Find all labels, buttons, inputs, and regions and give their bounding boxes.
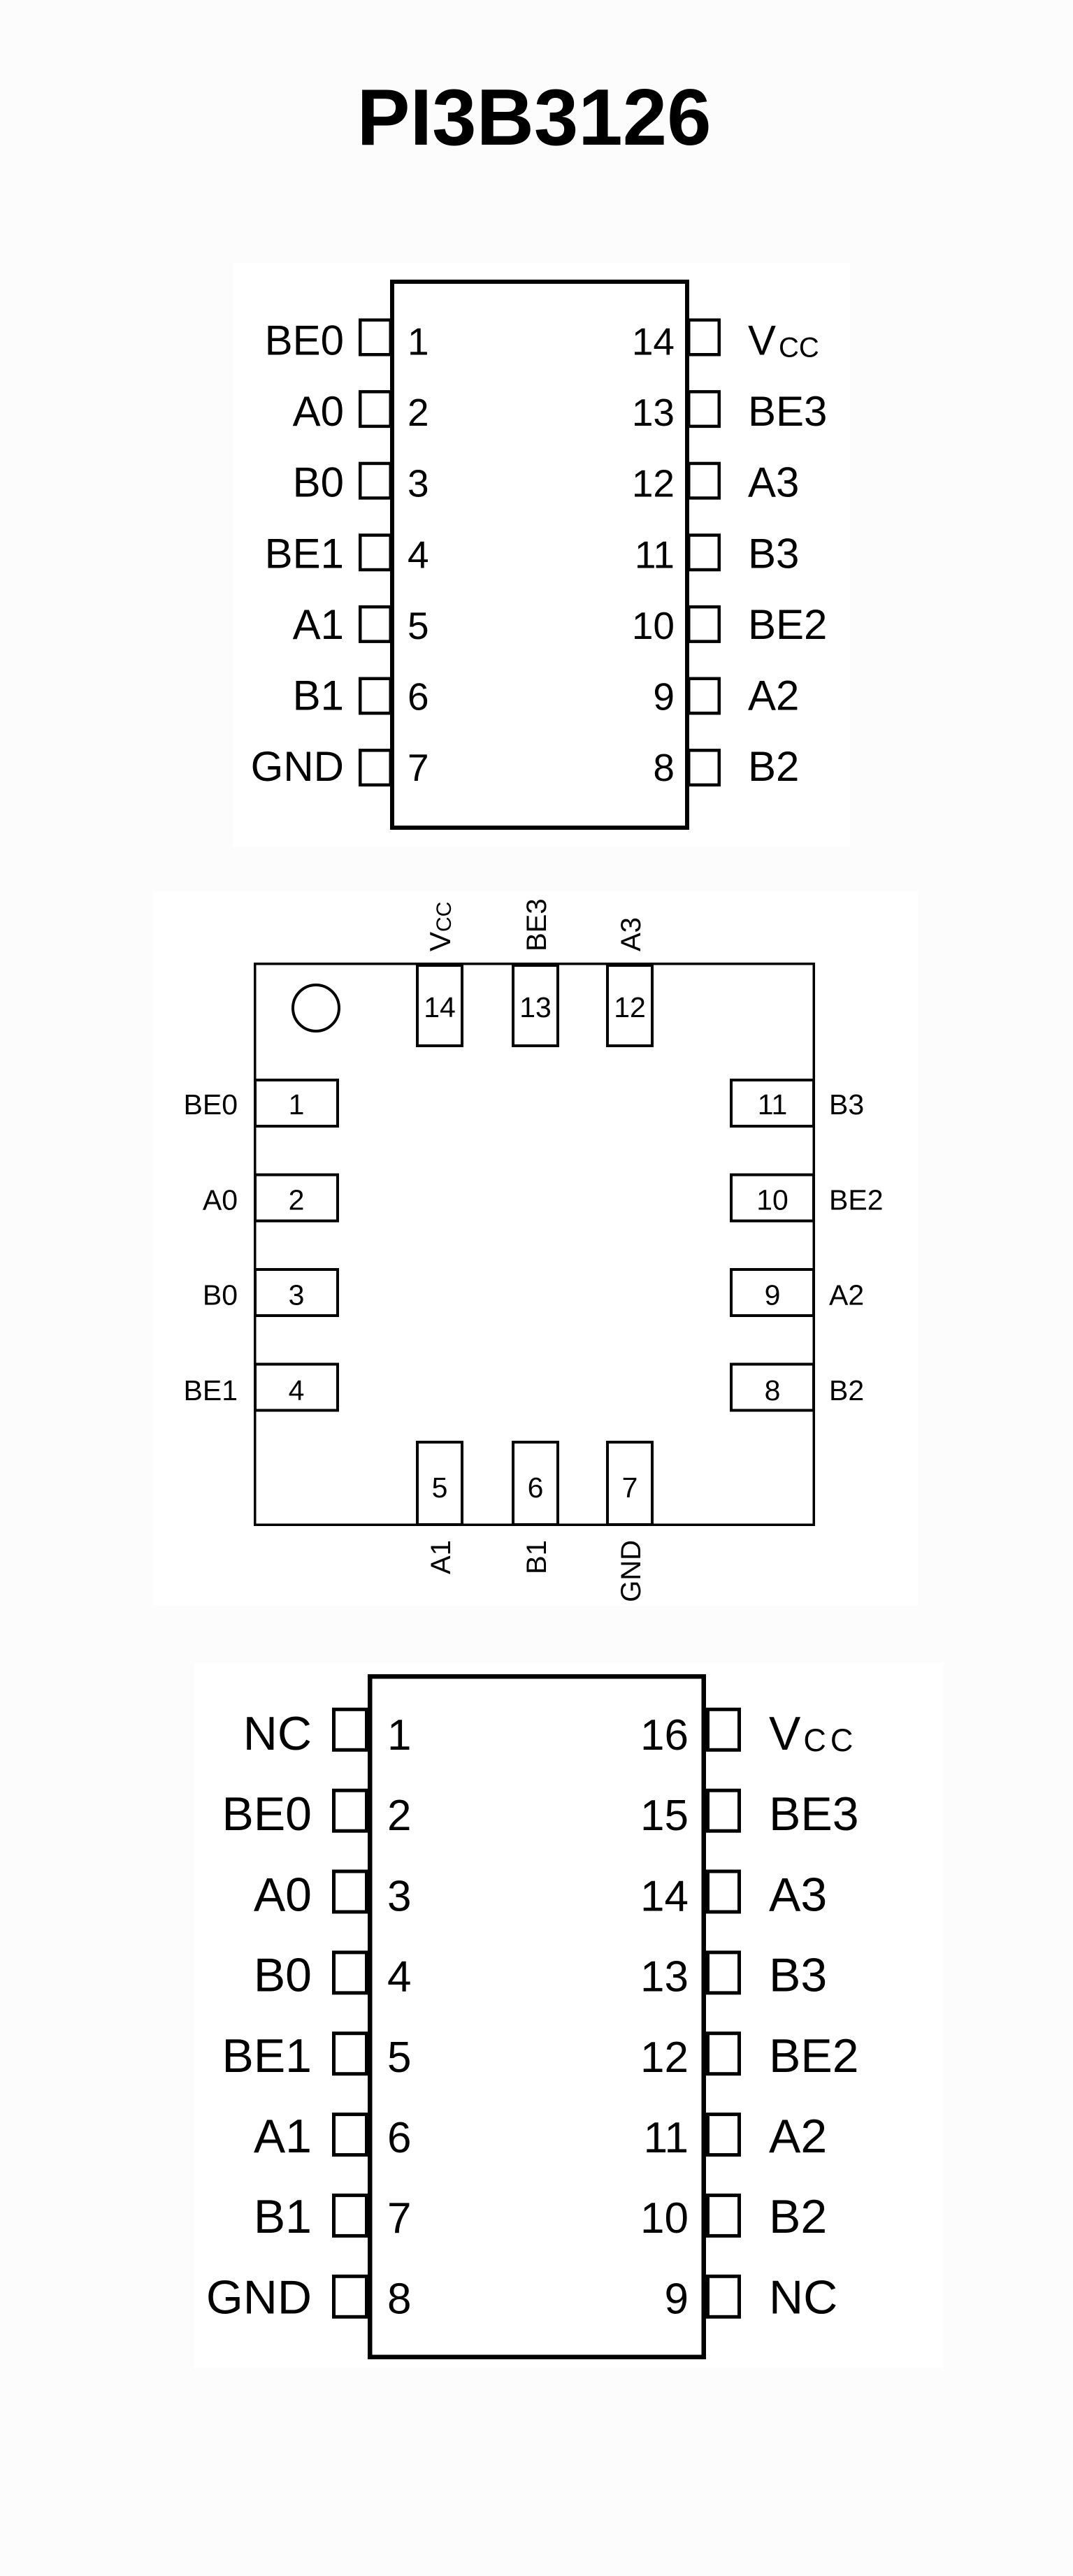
- svg-text:B0: B0: [203, 1279, 238, 1311]
- svg-text:12: 12: [640, 2034, 689, 2082]
- svg-text:13: 13: [632, 391, 675, 434]
- svg-text:2: 2: [387, 1792, 411, 1840]
- svg-text:A0: A0: [293, 388, 344, 435]
- svg-text:BE3: BE3: [521, 898, 552, 951]
- svg-text:15: 15: [640, 1792, 689, 1840]
- svg-text:A2: A2: [748, 672, 799, 719]
- svg-text:12: 12: [632, 462, 675, 505]
- svg-text:B1: B1: [293, 672, 344, 719]
- svg-text:11: 11: [644, 2114, 689, 2162]
- svg-text:B2: B2: [829, 1374, 864, 1406]
- svg-text:B3: B3: [769, 1949, 827, 2002]
- svg-text:B3: B3: [829, 1088, 864, 1121]
- svg-text:13: 13: [640, 1953, 689, 2001]
- svg-text:A2: A2: [829, 1279, 864, 1311]
- svg-text:9: 9: [653, 675, 675, 719]
- svg-text:B0: B0: [293, 459, 344, 506]
- svg-text:4: 4: [387, 1953, 411, 2001]
- svg-text:5: 5: [432, 1472, 448, 1504]
- svg-text:6: 6: [387, 2114, 411, 2162]
- svg-text:5: 5: [387, 2034, 411, 2082]
- svg-text:14: 14: [632, 320, 675, 364]
- svg-text:NC: NC: [243, 1707, 312, 1760]
- svg-text:7: 7: [387, 2194, 411, 2243]
- svg-text:B3: B3: [748, 530, 799, 577]
- svg-text:BE2: BE2: [769, 2029, 859, 2082]
- svg-text:1: 1: [408, 320, 429, 364]
- svg-text:B1: B1: [521, 1540, 552, 1574]
- svg-text:BE1: BE1: [184, 1374, 238, 1406]
- svg-text:9: 9: [665, 2275, 689, 2323]
- svg-text:6: 6: [528, 1472, 544, 1504]
- svg-text:7: 7: [622, 1472, 638, 1504]
- svg-text:16: 16: [640, 1711, 689, 1760]
- svg-text:4: 4: [408, 533, 429, 576]
- svg-text:BE2: BE2: [748, 601, 827, 648]
- svg-text:11: 11: [758, 1088, 788, 1121]
- svg-text:1: 1: [289, 1088, 305, 1121]
- svg-text:BE3: BE3: [748, 388, 827, 435]
- svg-text:A0: A0: [203, 1183, 238, 1216]
- svg-text:BE2: BE2: [829, 1183, 884, 1216]
- svg-text:6: 6: [408, 675, 429, 719]
- svg-text:NC: NC: [769, 2271, 837, 2324]
- svg-text:8: 8: [765, 1374, 781, 1406]
- svg-text:3: 3: [289, 1279, 305, 1311]
- svg-text:B0: B0: [254, 1949, 312, 2002]
- svg-text:A3: A3: [748, 459, 799, 506]
- svg-text:8: 8: [387, 2275, 411, 2323]
- svg-text:BE3: BE3: [769, 1787, 859, 1841]
- svg-text:2: 2: [289, 1183, 305, 1216]
- svg-text:A1: A1: [293, 601, 344, 648]
- svg-text:3: 3: [408, 462, 429, 505]
- svg-text:A1: A1: [254, 2110, 312, 2163]
- svg-text:BE0: BE0: [184, 1088, 238, 1121]
- svg-text:B2: B2: [769, 2190, 827, 2243]
- svg-text:4: 4: [289, 1374, 305, 1406]
- svg-text:14: 14: [640, 1872, 689, 1920]
- svg-text:A3: A3: [616, 917, 647, 951]
- svg-text:BE1: BE1: [265, 530, 344, 577]
- svg-text:A3: A3: [769, 1868, 827, 1921]
- svg-text:11: 11: [635, 533, 675, 576]
- svg-text:PI3B3126: PI3B3126: [357, 73, 711, 162]
- svg-text:8: 8: [653, 746, 675, 789]
- svg-text:1: 1: [387, 1711, 411, 1760]
- svg-text:10: 10: [640, 2194, 689, 2243]
- svg-text:BE0: BE0: [222, 1787, 312, 1841]
- svg-text:GND: GND: [251, 743, 344, 790]
- svg-text:5: 5: [408, 604, 429, 647]
- svg-text:7: 7: [408, 746, 429, 789]
- svg-text:2: 2: [408, 391, 429, 434]
- svg-text:B1: B1: [254, 2190, 312, 2243]
- svg-text:B2: B2: [748, 743, 799, 790]
- svg-text:13: 13: [519, 991, 552, 1023]
- svg-text:A1: A1: [426, 1540, 456, 1574]
- svg-text:12: 12: [614, 991, 646, 1023]
- svg-text:9: 9: [765, 1279, 781, 1311]
- svg-text:14: 14: [424, 991, 456, 1023]
- svg-text:BE0: BE0: [265, 317, 344, 364]
- svg-text:10: 10: [756, 1183, 788, 1216]
- svg-text:3: 3: [387, 1872, 411, 1920]
- svg-text:GND: GND: [616, 1540, 647, 1602]
- svg-text:GND: GND: [206, 2271, 312, 2324]
- svg-text:10: 10: [632, 604, 675, 647]
- svg-text:BE1: BE1: [222, 2029, 312, 2082]
- svg-text:A2: A2: [769, 2110, 827, 2163]
- svg-text:A0: A0: [254, 1868, 312, 1921]
